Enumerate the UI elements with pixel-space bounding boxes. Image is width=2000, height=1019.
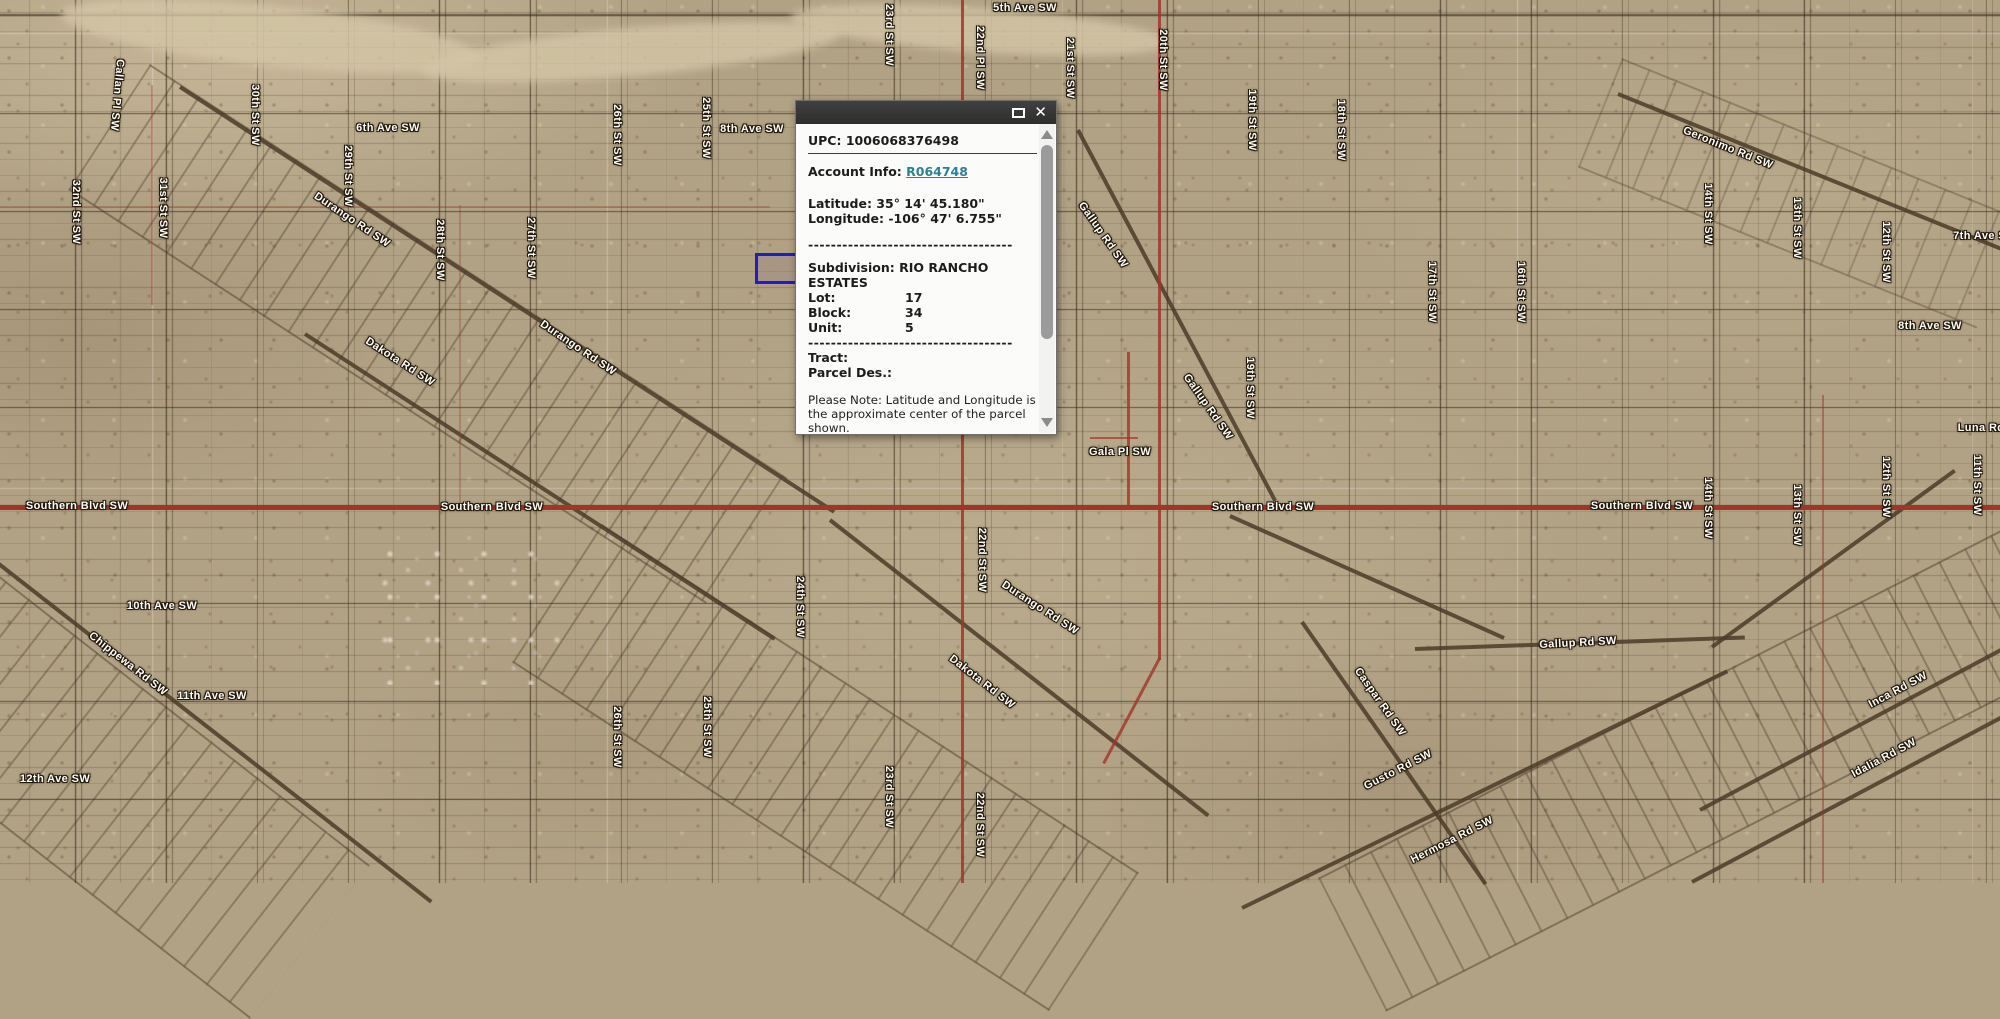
street-label: 7th Ave SW (1953, 230, 2000, 242)
divider-rule (808, 153, 1037, 154)
lot-value: 17 (905, 290, 922, 305)
account-info-row: Account Info: R064748 (808, 164, 1037, 179)
street-label: Southern Blvd SW (1212, 501, 1314, 513)
latitude-row: Latitude: 35° 14' 45.180" (808, 196, 1037, 211)
road-southern-blvd (0, 505, 2000, 510)
street-label: 32nd St SW (70, 180, 82, 245)
road-gala-red (1127, 352, 1130, 506)
street-label: 11th Ave SW (177, 690, 247, 702)
road-20th-st (1158, 0, 1161, 660)
street-label: 25th St SW (701, 696, 713, 757)
section-line-h (0, 206, 770, 208)
street-label: 5th Ave SW (993, 2, 1057, 14)
street-label: 25th St SW (700, 97, 712, 158)
lot-label: Lot: (808, 290, 905, 305)
street-label: 11th St SW (1971, 455, 1983, 516)
street-label: 12th St SW (1880, 221, 1892, 282)
street-label: Southern Blvd SW (1591, 500, 1693, 512)
street-label: 13th St SW (1791, 484, 1803, 545)
street-label: 14th St SW (1702, 183, 1714, 244)
account-info-label: Account Info: (808, 164, 906, 179)
dashed-separator: ------------------------------------ (808, 335, 1037, 350)
dashed-separator: ------------------------------------ (808, 237, 1037, 252)
section-line-v2 (459, 205, 461, 505)
street-label: 12th Ave SW (20, 773, 90, 785)
street-label: 28th St SW (434, 219, 446, 280)
street-label: Southern Blvd SW (441, 501, 543, 513)
road-gala-stub (1090, 437, 1138, 439)
street-label: 27th St SW (525, 217, 537, 278)
street-label: 21st St SW (1064, 38, 1076, 99)
unit-label: Unit: (808, 320, 905, 335)
lot-row: Lot: 17 (808, 290, 1037, 305)
popup-titlebar[interactable]: ✕ (796, 101, 1056, 124)
block-label: Block: (808, 305, 905, 320)
unit-row: Unit: 5 (808, 320, 1037, 335)
street-label: 29th St SW (342, 145, 354, 206)
housing-cluster (378, 545, 563, 685)
parcel-info-popup: ✕ UPC: 1006068376498 Account Info: R0647… (795, 100, 1057, 435)
popup-content: UPC: 1006068376498 Account Info: R064748… (796, 124, 1039, 434)
street-label: Southern Blvd SW (26, 500, 128, 512)
street-label: 26th St SW (611, 104, 623, 165)
popup-note: Please Note: Latitude and Longitude is t… (808, 393, 1037, 434)
street-label: 19th St SW (1246, 89, 1258, 150)
street-label: 10th Ave SW (127, 600, 197, 612)
street-label: 12th St SW (1880, 456, 1892, 517)
street-label: 18th St SW (1335, 99, 1347, 160)
street-label: 8th Ave SW (720, 123, 784, 135)
street-label: 30th St SW (249, 84, 261, 145)
account-info-link[interactable]: R064748 (906, 164, 968, 179)
street-label: 17th St SW (1426, 261, 1438, 322)
street-label: 8th Ave SW (1898, 320, 1962, 332)
street-label: 20th St SW (1157, 29, 1169, 90)
street-label: 26th St SW (611, 706, 623, 767)
street-label: 31st St SW (157, 178, 169, 239)
street-label: 22nd St SW (974, 793, 986, 858)
street-label: 23rd St SW (883, 4, 895, 66)
block-row: Block: 34 (808, 305, 1037, 320)
street-label: 13th St SW (1791, 197, 1803, 258)
street-label: 23rd St SW (883, 766, 895, 828)
street-label: Gala Pl SW (1089, 446, 1151, 458)
street-label: 22nd St SW (976, 528, 988, 593)
unit-value: 5 (905, 320, 914, 335)
street-label: 24th St SW (794, 576, 806, 637)
parcel-des-row: Parcel Des.: (808, 365, 1037, 380)
street-label: 19th St SW (1244, 357, 1256, 418)
street-label: 14th St SW (1702, 477, 1714, 538)
tract-row: Tract: (808, 350, 1037, 365)
popup-scrollbar[interactable] (1039, 124, 1055, 433)
road-13th-red (1822, 395, 1824, 883)
scroll-thumb[interactable] (1041, 145, 1053, 339)
close-icon[interactable]: ✕ (1034, 103, 1047, 121)
section-line-v (151, 85, 153, 305)
upc-value: UPC: 1006068376498 (808, 133, 1037, 148)
street-label: 22nd Pl SW (974, 26, 986, 90)
scroll-down-icon[interactable] (1041, 418, 1053, 427)
street-label: 6th Ave SW (356, 122, 420, 134)
subdivision-row: Subdivision: RIO RANCHO ESTATES (808, 260, 1037, 290)
street-label: Luna Rd SW (1958, 422, 2000, 434)
block-value: 34 (905, 305, 922, 320)
street-label: 16th St SW (1515, 261, 1527, 322)
longitude-row: Longitude: -106° 47' 6.755" (808, 211, 1037, 226)
maximize-icon[interactable] (1012, 108, 1025, 118)
scroll-up-icon[interactable] (1041, 130, 1053, 139)
